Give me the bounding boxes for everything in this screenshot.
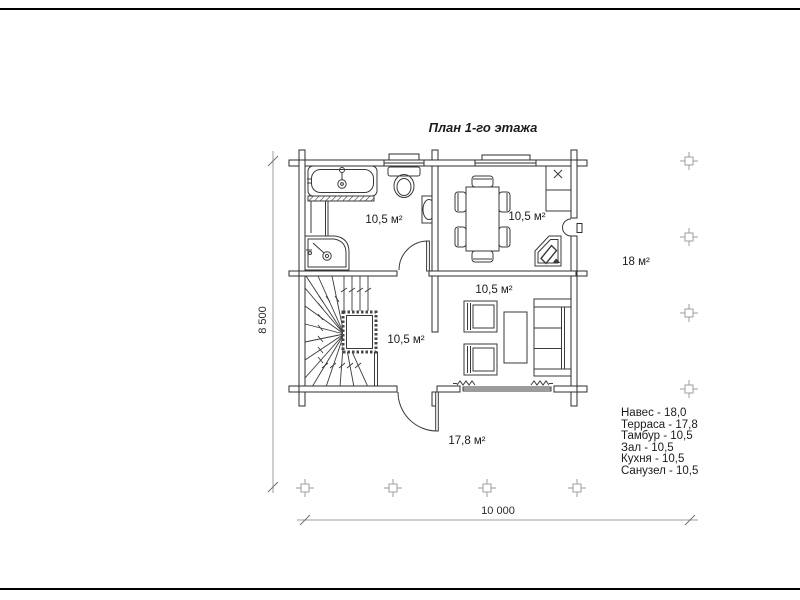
bathtub — [307, 166, 377, 196]
dining-chairs — [455, 176, 510, 262]
room-label-canopy: 18 м² — [622, 256, 650, 268]
room-label-kitchen: 10,5 м² — [508, 211, 545, 223]
shower — [305, 236, 349, 270]
dining-table — [466, 187, 499, 251]
legend-item-canopy: Навес - 18,0 — [621, 408, 698, 420]
bathtub-apron-hatch — [308, 196, 374, 201]
room-label-terrace: 17,8 м² — [448, 435, 485, 447]
floor-plan-page: План 1-го этажа 8 50 — [0, 0, 800, 600]
corner-fireplace — [535, 236, 561, 266]
stair-stringer — [375, 352, 378, 386]
toilet — [388, 167, 420, 198]
room-label-bathroom: 10,5 м² — [365, 214, 402, 226]
room-labels: 10,5 м² 10,5 м² 10,5 м² 10,5 м² 17,8 м² … — [365, 211, 650, 447]
area-legend: Навес - 18,0 Терраса - 17,8 Тамбур - 10,… — [621, 408, 698, 478]
armchair — [464, 301, 497, 332]
dimension-width: 10 000 — [481, 505, 515, 517]
coffee-table — [504, 312, 527, 363]
window-bathroom — [384, 154, 424, 166]
stair-newel — [343, 312, 376, 352]
room-label-tambour: 10,5 м² — [387, 334, 424, 346]
room-label-hall: 10,5 м² — [475, 284, 512, 296]
kitchen-counter — [546, 166, 571, 211]
window-kitchen — [475, 155, 536, 166]
legend-item-bathroom: Санузел - 10,5 — [621, 466, 698, 478]
living-room-furniture — [464, 299, 571, 376]
bathroom-door — [399, 241, 429, 271]
dimension-height: 8 500 — [257, 306, 269, 334]
walls — [289, 150, 587, 406]
kitchen-side-door — [563, 219, 583, 236]
sofa — [534, 299, 571, 376]
floor-plan-drawing: 8 500 10 000 — [0, 0, 800, 600]
armchair — [464, 344, 497, 375]
window-living-room — [453, 381, 553, 391]
